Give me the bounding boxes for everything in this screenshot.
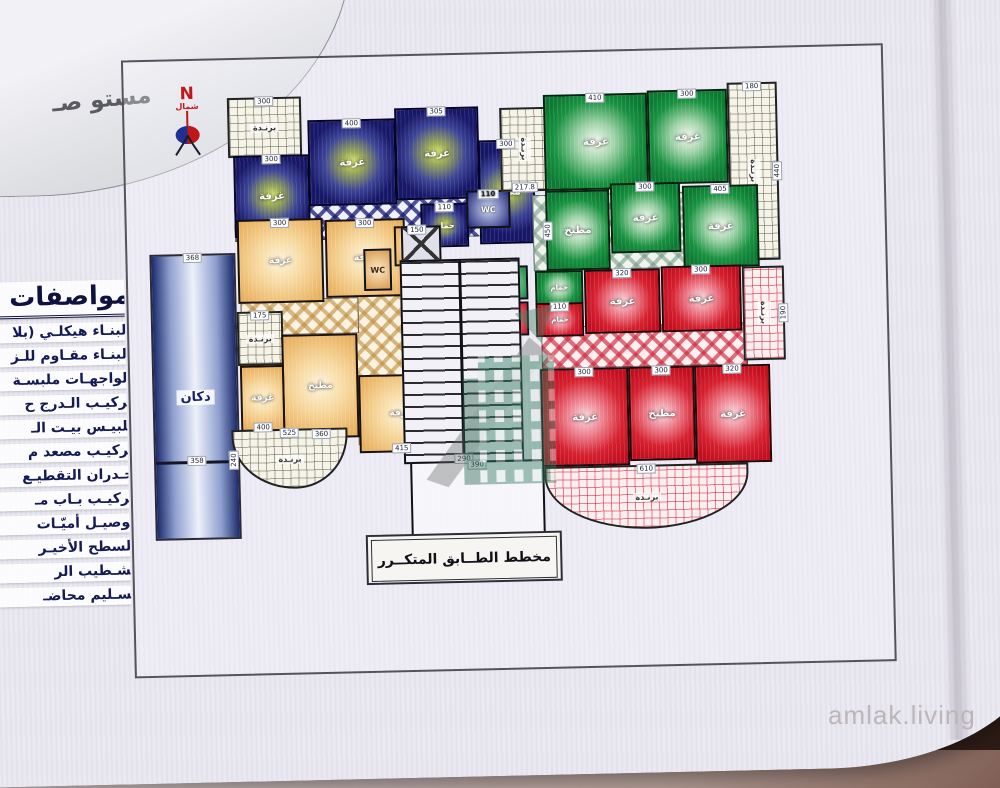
wc: 110 WC — [466, 190, 511, 229]
spec-line: تركيـب الـدرج ح — [0, 393, 131, 417]
dimension-label: 390 — [467, 459, 487, 469]
room: 300 غرفة — [661, 265, 742, 333]
dimension-label: 110 — [478, 189, 499, 199]
room: 320 غرفة — [584, 268, 661, 334]
stair-rail — [458, 261, 466, 461]
balcony: 175 برنـدة — [237, 311, 284, 366]
room-label: WC — [481, 205, 496, 214]
room-label: غرفة — [545, 95, 647, 189]
balcony-label: برنـدة — [757, 301, 771, 324]
room-label: غرفة — [696, 366, 770, 462]
dimension-label: 300 — [355, 218, 375, 228]
wc: WC — [363, 248, 392, 291]
room: 300 غرفة — [610, 182, 682, 254]
room: 405 غرفة — [682, 184, 760, 268]
balcony-label: برنـدة — [276, 454, 303, 464]
room-label: غرفة — [649, 91, 727, 183]
room: 300 غرفة — [540, 367, 630, 467]
dimension-label: 358 — [187, 456, 207, 466]
dimension-label: 175 — [250, 310, 270, 320]
dimension-label: 360 — [312, 429, 332, 439]
spec-line: تسـليم محاضـ — [0, 585, 131, 609]
dimension-label: 400 — [253, 422, 273, 432]
room-label: غرفة — [396, 108, 478, 198]
dimension-label: 415 — [392, 443, 412, 453]
spec-line: تركيـب بـاب مـ — [0, 489, 131, 513]
printed-banner: مستو صـ N شمال مواصفات ا البنـاء هيكلـي … — [0, 0, 1000, 788]
dimension-label: 300 — [261, 154, 281, 164]
banner-content: مستو صـ N شمال مواصفات ا البنـاء هيكلـي … — [0, 0, 1000, 761]
balcony-label: برنـدة — [251, 122, 278, 132]
room-label: مطبخ — [547, 192, 609, 269]
spec-line: السطح الأخيـر — [0, 537, 131, 561]
shop-label-wrap: دكان — [151, 255, 239, 539]
spec-line: البنـاء هيكلـي (بلا — [0, 321, 131, 345]
room: 305 غرفة — [394, 106, 480, 200]
north-letter: N — [157, 86, 217, 102]
dimension-label: 110 — [550, 301, 570, 311]
room-label: غرفة — [239, 220, 323, 302]
room-label: غرفة — [542, 369, 628, 465]
dimension-label: 440 — [772, 161, 782, 181]
spec-line: توصيـل أميّـات — [0, 513, 131, 537]
room-label: غرفة — [612, 184, 679, 251]
room-label: WC — [370, 265, 385, 274]
spec-line: البنـاء مقـاوم للـز — [0, 345, 131, 369]
spec-line: تشـطيب الر — [0, 561, 131, 585]
dimension-label: 305 — [426, 106, 446, 116]
dimension-label: 190 — [778, 303, 788, 323]
dimension-label: 320 — [612, 268, 632, 278]
plan-title-box: مخطط الطــابق المتكــرر — [366, 531, 563, 585]
room-label: غرفة — [663, 267, 740, 331]
dimension-label: 410 — [585, 93, 605, 103]
banner-fold-shadow — [930, 0, 973, 740]
dimension-label: 300 — [651, 365, 671, 375]
dimension-label: 300 — [677, 88, 697, 98]
plan-title: مخطط الطــابق المتكــرر — [371, 536, 558, 582]
balcony: 190 برنـدة — [742, 266, 786, 361]
dimension-label: 300 — [254, 96, 274, 106]
shop-label: دكان — [176, 389, 215, 405]
room-label: حمام — [537, 272, 582, 303]
room: 410 غرفة — [543, 93, 649, 191]
dimension-label: 400 — [342, 118, 362, 128]
room-label: مطبخ — [283, 335, 357, 437]
dimension-label: 300 — [635, 181, 655, 191]
room-label: غرفة — [586, 270, 659, 332]
dimension-label: 300 — [691, 264, 711, 274]
north-tower-icon — [165, 111, 210, 158]
kitchen: 450 مطبخ — [545, 189, 611, 270]
spec-line: جـدران التقطيـع — [0, 465, 131, 489]
kitchen: 300 مطبخ — [628, 366, 696, 461]
dimension-label: 450 — [543, 221, 553, 241]
dimension-label: 240 — [229, 450, 239, 470]
dimension-label: 525 — [280, 428, 300, 438]
dimension-label: 368 — [183, 253, 203, 263]
dimension-label: 405 — [710, 184, 730, 194]
staircase: 290 — [400, 258, 525, 465]
specifications-panel: مواصفات ا البنـاء هيكلـي (بلا البنـاء مق… — [0, 275, 131, 613]
room: 320 غرفة — [694, 364, 772, 464]
north-arrow: N شمال — [157, 86, 219, 157]
room-label: غرفة — [242, 367, 283, 430]
balcony-label: برنـدة — [247, 334, 274, 344]
dimension-label: 300 — [270, 218, 290, 228]
dimension-label: 217.8 — [512, 182, 538, 193]
shop-unit: 368 358 دكان — [149, 253, 241, 541]
dimension-label: 180 — [742, 81, 762, 91]
dimension-label: 300 — [574, 367, 594, 377]
room: 300 غرفة — [647, 89, 729, 185]
specs-title: مواصفات ا — [0, 279, 131, 321]
room-label: غرفة — [309, 120, 395, 204]
room: 300 غرفة — [237, 218, 325, 304]
balcony: 217.8 برنـدة — [499, 107, 549, 192]
balcony-label: برنـدة — [517, 138, 531, 161]
dimension-label: 150 — [407, 225, 427, 235]
dimension-label: 320 — [722, 364, 742, 374]
spec-line: تلبيـس بيـت الـ — [0, 417, 131, 441]
balcony-label: برنـدة — [633, 492, 660, 502]
photo-watermark: amlak.living — [828, 700, 976, 731]
room-label: مطبخ — [630, 368, 694, 459]
balcony: 300 برنـدة — [227, 96, 302, 158]
dimension-label: 300 — [496, 139, 516, 149]
spec-line: تركيـب مصعد م — [0, 441, 131, 465]
room: 400 غرفة — [307, 118, 397, 206]
balcony-label: برنـدة — [747, 160, 761, 183]
bathroom: حمام — [535, 270, 584, 305]
dimension-label: 110 — [435, 202, 455, 212]
kitchen: 360 مطبخ — [281, 333, 359, 439]
dimension-label: 610 — [637, 463, 657, 473]
room-label: غرفة — [684, 186, 758, 266]
room: 400 غرفة — [240, 365, 285, 432]
spec-line: الواجهـات ملبسـة — [0, 369, 131, 393]
bathroom: 110 حمام — [536, 302, 585, 337]
